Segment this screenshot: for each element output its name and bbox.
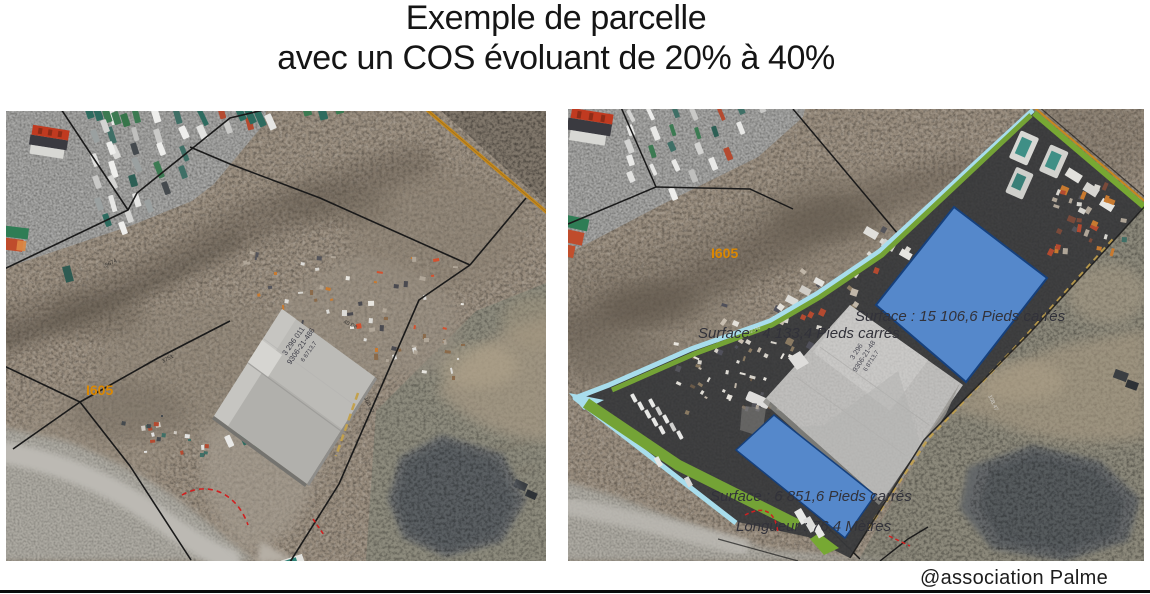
svg-text:Surface : 15 106,6 Pieds carré: Surface : 15 106,6 Pieds carrés xyxy=(855,308,1066,325)
svg-text:I605: I605 xyxy=(711,245,738,261)
svg-text:Surface : 4 133,4 Pieds carrés: Surface : 4 133,4 Pieds carrés xyxy=(698,325,900,342)
svg-text:Longueur : 76,4 Mètres: Longueur : 76,4 Mètres xyxy=(736,518,892,535)
svg-text:I605: I605 xyxy=(86,382,113,398)
svg-text:Surface : 6 851,6 Pieds carrés: Surface : 6 851,6 Pieds carrés xyxy=(710,488,912,505)
